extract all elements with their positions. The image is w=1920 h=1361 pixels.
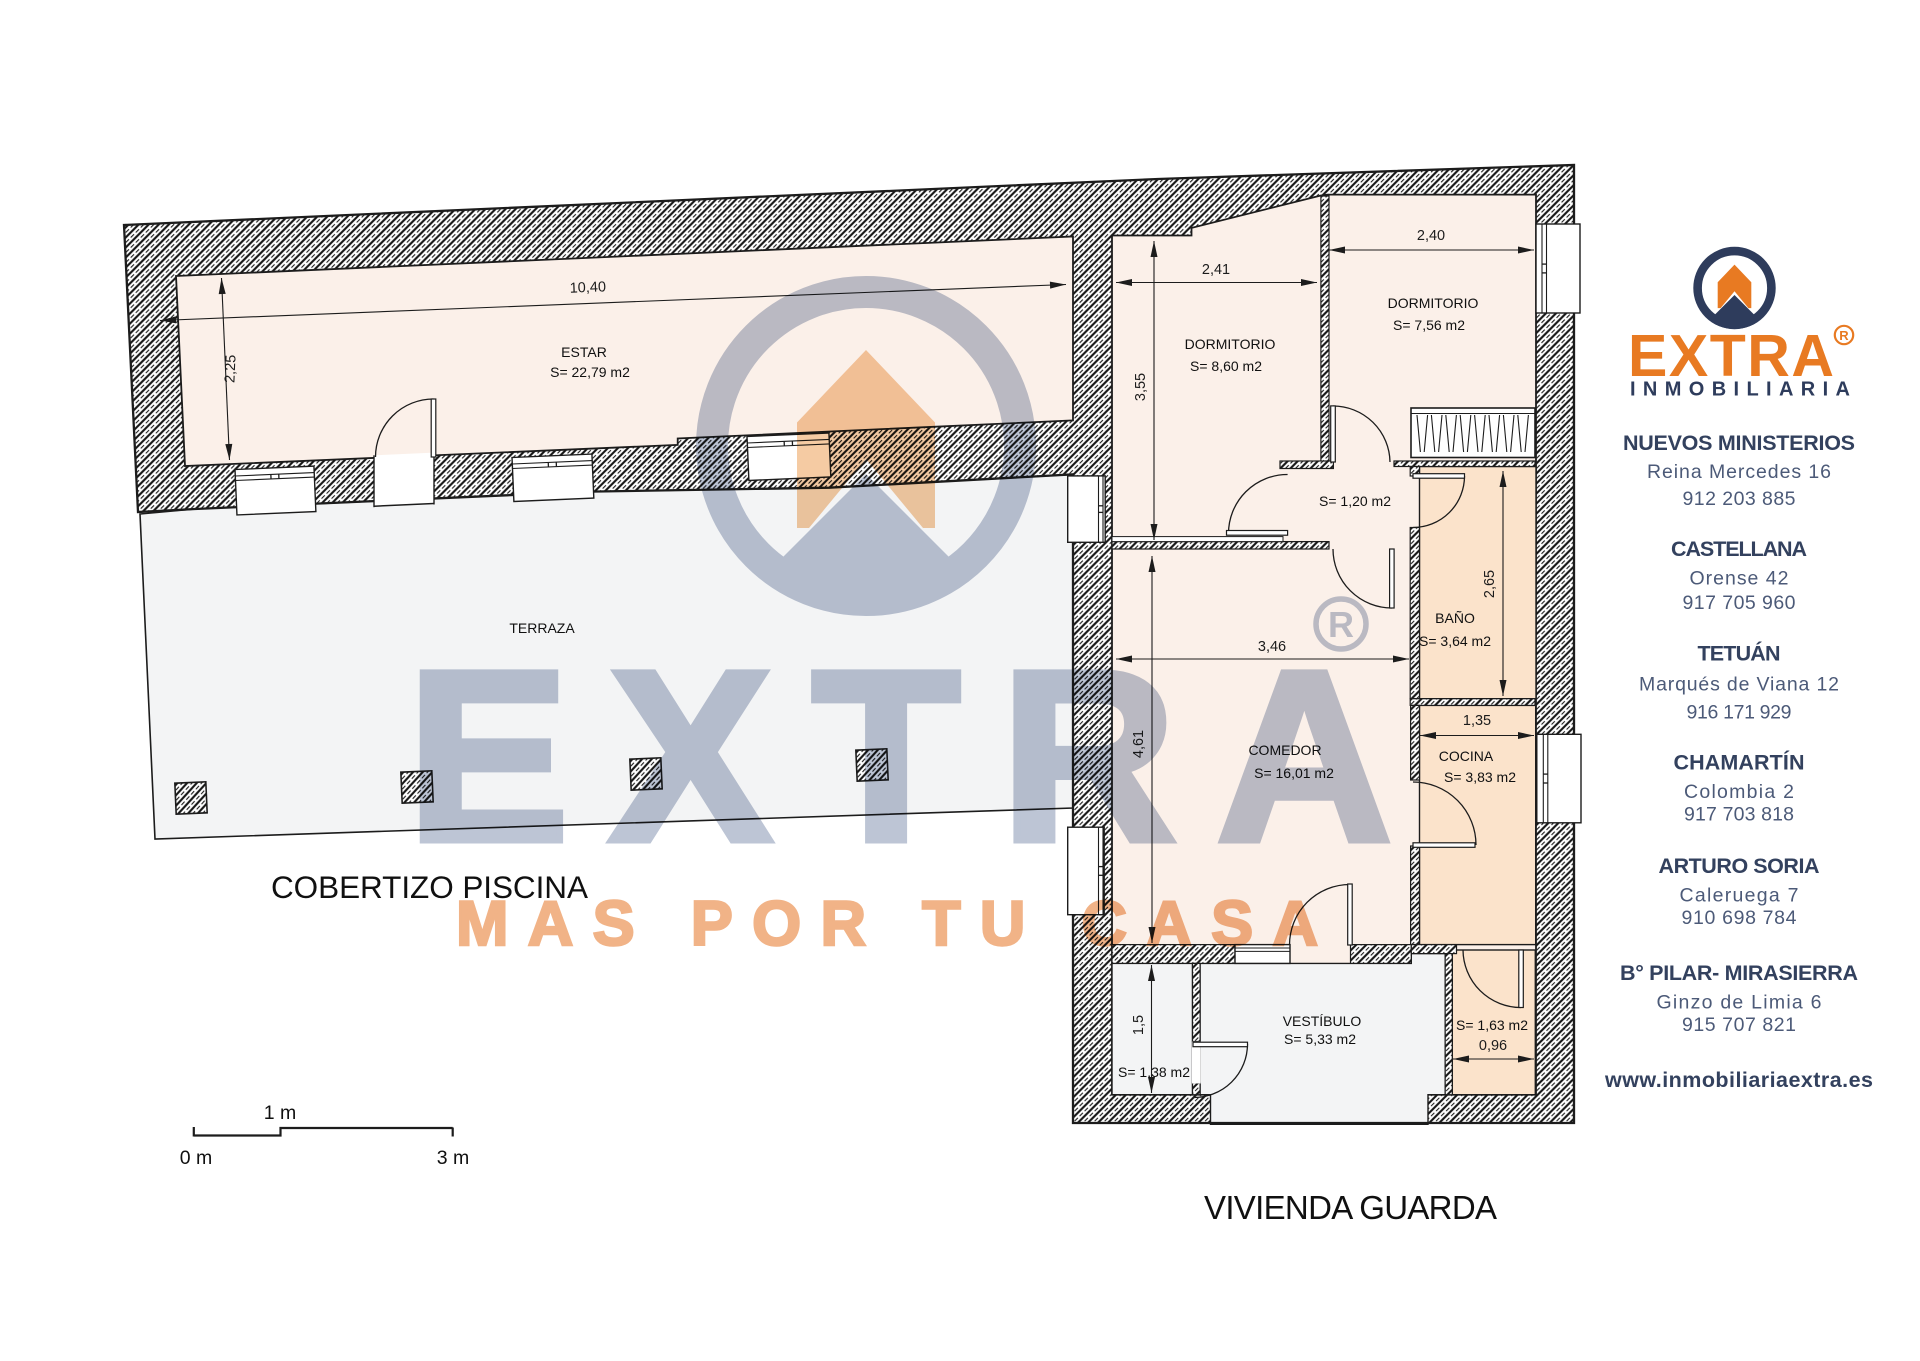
svg-text:912 203 885: 912 203 885: [1683, 488, 1796, 510]
svg-text:2,40: 2,40: [1417, 228, 1445, 244]
svg-text:ESTAR: ESTAR: [561, 344, 607, 360]
svg-text:EXTRA: EXTRA: [407, 621, 1392, 892]
svg-text:0 m: 0 m: [180, 1147, 213, 1169]
svg-text:Colombia 2: Colombia 2: [1684, 781, 1794, 803]
svg-text:VESTÍBULO: VESTÍBULO: [1283, 1013, 1362, 1029]
svg-text:DORMITORIO: DORMITORIO: [1185, 336, 1276, 352]
svg-text:916 171 929: 916 171 929: [1687, 702, 1792, 724]
svg-text:DORMITORIO: DORMITORIO: [1388, 295, 1479, 311]
svg-text:0,96: 0,96: [1479, 1038, 1507, 1054]
svg-text:BAÑO: BAÑO: [1435, 610, 1475, 626]
svg-text:Marqués de Viana 12: Marqués de Viana 12: [1639, 674, 1839, 696]
svg-text:S= 22,79 m2: S= 22,79 m2: [550, 364, 630, 380]
svg-text:1,5: 1,5: [1131, 1015, 1147, 1035]
svg-text:917 705 960: 917 705 960: [1683, 592, 1796, 614]
svg-text:910 698 784: 910 698 784: [1682, 907, 1797, 929]
svg-text:917 703 818: 917 703 818: [1684, 804, 1794, 826]
svg-text:S= 5,33 m2: S= 5,33 m2: [1284, 1031, 1356, 1047]
svg-text:CASTELLANA: CASTELLANA: [1671, 537, 1807, 561]
svg-text:S= 1,38 m2: S= 1,38 m2: [1118, 1064, 1190, 1080]
svg-text:2,25: 2,25: [222, 354, 239, 383]
svg-text:TETUÁN: TETUÁN: [1698, 641, 1781, 666]
svg-text:2,41: 2,41: [1202, 262, 1230, 278]
svg-text:1,35: 1,35: [1463, 713, 1491, 729]
svg-text:NUEVOS MINISTERIOS: NUEVOS MINISTERIOS: [1623, 431, 1855, 455]
svg-text:S= 3,83 m2: S= 3,83 m2: [1444, 769, 1516, 785]
svg-text:S= 1,20 m2: S= 1,20 m2: [1319, 493, 1391, 509]
svg-text:1 m: 1 m: [264, 1102, 297, 1124]
svg-text:S= 3,64 m2: S= 3,64 m2: [1419, 633, 1491, 649]
svg-text:www.inmobiliariaextra.es: www.inmobiliariaextra.es: [1604, 1068, 1873, 1092]
svg-text:S= 7,56 m2: S= 7,56 m2: [1393, 317, 1465, 333]
svg-text:Orense 42: Orense 42: [1690, 568, 1789, 590]
svg-text:10,40: 10,40: [569, 279, 606, 296]
svg-text:R: R: [1328, 604, 1354, 645]
svg-text:B° PILAR- MIRASIERRA: B° PILAR- MIRASIERRA: [1620, 961, 1858, 985]
svg-text:2,65: 2,65: [1482, 570, 1498, 598]
svg-text:Ginzo de Limia 6: Ginzo de Limia 6: [1657, 992, 1822, 1014]
svg-text:3,55: 3,55: [1133, 373, 1149, 401]
svg-text:COCINA: COCINA: [1439, 748, 1494, 764]
svg-text:ARTURO SORIA: ARTURO SORIA: [1659, 854, 1820, 878]
svg-text:Reina Mercedes 16: Reina Mercedes 16: [1647, 461, 1831, 483]
svg-text:CHAMARTÍN: CHAMARTÍN: [1674, 750, 1805, 775]
svg-text:3 m: 3 m: [437, 1147, 470, 1169]
svg-text:R: R: [1839, 328, 1849, 343]
svg-text:S= 8,60 m2: S= 8,60 m2: [1190, 358, 1262, 374]
svg-text:Caleruega 7: Caleruega 7: [1680, 885, 1799, 907]
svg-text:915 707 821: 915 707 821: [1682, 1014, 1796, 1036]
svg-text:S= 1,63 m2: S= 1,63 m2: [1456, 1017, 1528, 1033]
svg-text:VIVIENDA GUARDA: VIVIENDA GUARDA: [1204, 1189, 1497, 1226]
